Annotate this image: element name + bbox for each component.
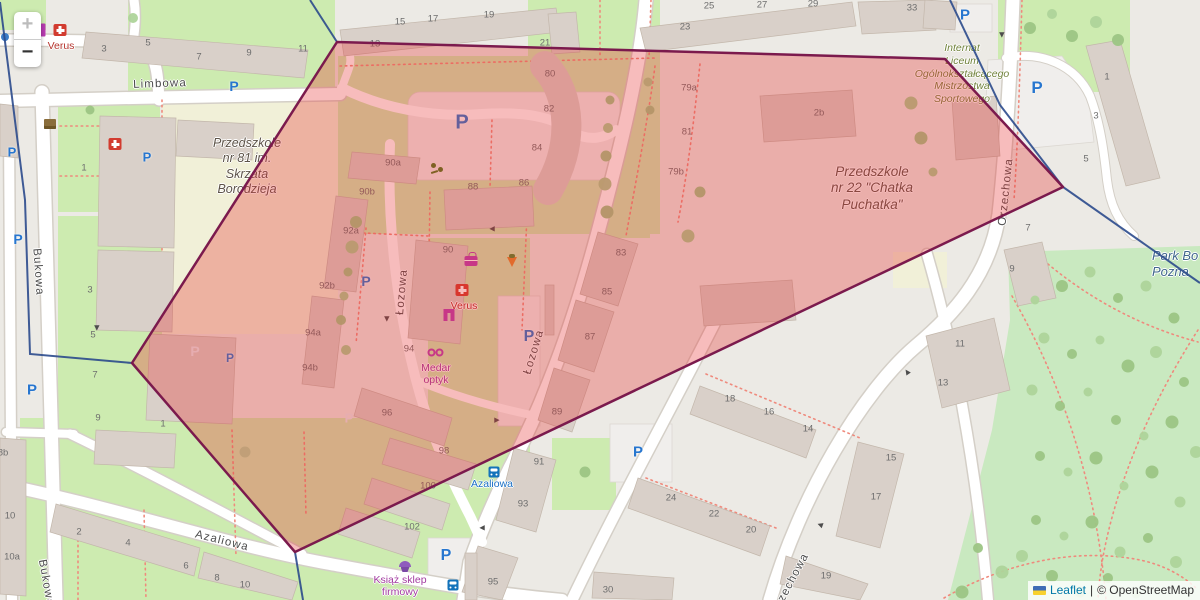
- tree-icon: [1115, 547, 1126, 558]
- housenumber: 94a: [305, 328, 321, 339]
- housenumber: 14: [803, 424, 814, 435]
- parking-icon: P: [633, 444, 643, 461]
- housenumber: 22: [709, 509, 720, 520]
- housenumber: 10a: [4, 552, 20, 563]
- housenumber: 3: [87, 285, 92, 296]
- tree-icon: [973, 543, 983, 553]
- housenumber: 5: [145, 38, 150, 49]
- housenumber: 17: [871, 492, 882, 503]
- map-labels-layer: 357911131517192123252729331357918b1010a2…: [0, 0, 1200, 600]
- tree-icon: [1060, 532, 1069, 541]
- housenumber: 102: [404, 522, 420, 533]
- parking-icon: P: [8, 145, 17, 160]
- parking-icon: P: [960, 7, 970, 24]
- greengrocer-icon: [507, 257, 517, 267]
- tree-icon: [905, 97, 918, 110]
- tree-icon: [599, 178, 612, 191]
- street-name-label: Azaliowa: [194, 529, 250, 554]
- tree-icon: [1120, 482, 1129, 491]
- leaflet-link[interactable]: Leaflet: [1050, 581, 1086, 600]
- oneway-arrow-icon: ▶: [494, 416, 499, 424]
- tree-icon: [646, 106, 655, 115]
- optician-icon: [428, 349, 443, 356]
- tree-icon: [1175, 497, 1186, 508]
- street-name-label: Limbowa: [133, 77, 187, 91]
- tree-icon: [1112, 34, 1124, 46]
- street-name-label: Bukowa: [30, 248, 45, 296]
- tree-icon: [1039, 333, 1050, 344]
- tree-icon: [1027, 385, 1038, 396]
- housenumber: 21: [540, 38, 551, 49]
- tree-icon: [240, 447, 251, 458]
- parking-icon: P: [361, 273, 370, 289]
- bus-stop-icon: [448, 580, 459, 591]
- tree-icon: [1143, 533, 1153, 543]
- tree-icon: [956, 586, 969, 599]
- parking-icon: P: [143, 150, 152, 165]
- zoom-out-button[interactable]: −: [14, 40, 41, 67]
- tree-icon: [1047, 9, 1057, 19]
- clothes-shop-icon: [444, 309, 455, 325]
- housenumber: 92b: [319, 281, 335, 292]
- ukraine-flag-icon: [1033, 586, 1046, 595]
- tree-icon: [1170, 556, 1182, 568]
- housenumber: 94: [404, 344, 415, 355]
- tree-icon: [1141, 281, 1152, 292]
- housenumber: 5: [1083, 154, 1088, 165]
- oneway-arrow-icon: ▶: [93, 325, 101, 330]
- housenumber: 88: [468, 182, 479, 193]
- bus-stop-icon: [489, 467, 500, 478]
- tree-icon: [606, 96, 615, 105]
- tree-icon: [603, 123, 613, 133]
- playground-icon: [430, 162, 444, 174]
- housenumber: 90b: [359, 187, 375, 198]
- housenumber: 80: [545, 69, 556, 80]
- housenumber: 4: [125, 538, 130, 549]
- housenumber: 13: [370, 39, 381, 50]
- parking-icon: P: [190, 343, 199, 359]
- oneway-arrow-icon: ▶: [383, 316, 391, 321]
- housenumber: 91: [534, 457, 545, 468]
- poi-label-verus-pharmacy-2: Verus: [451, 300, 478, 312]
- housenumber: 100: [420, 481, 436, 492]
- housenumber: 1: [160, 419, 165, 430]
- pharmacy-icon: [54, 24, 67, 36]
- housenumber: 95: [488, 577, 499, 588]
- poi-label-medar-optyk: Medaroptyk: [421, 362, 451, 387]
- tree-icon: [1111, 415, 1121, 425]
- tree-icon: [1086, 516, 1099, 529]
- tree-icon: [601, 206, 614, 219]
- tree-icon: [1085, 267, 1096, 278]
- housenumber: 9: [246, 48, 251, 59]
- oneway-arrow-icon: ▶: [489, 225, 494, 233]
- tree-icon: [915, 132, 928, 145]
- map-canvas[interactable]: 357911131517192123252729331357918b1010a2…: [0, 0, 1200, 600]
- housenumber: 98: [439, 446, 450, 457]
- tree-icon: [128, 13, 138, 23]
- tree-icon: [1016, 550, 1028, 562]
- tree-icon: [682, 230, 695, 243]
- zoom-control: + −: [14, 12, 41, 67]
- housenumber: 8b: [0, 448, 8, 459]
- tree-icon: [1031, 515, 1041, 525]
- parking-icon: P: [13, 231, 22, 247]
- housenumber: 9: [1009, 264, 1014, 275]
- osm-link[interactable]: © OpenStreetMap: [1097, 581, 1194, 600]
- oneway-arrow-icon: ▶: [479, 524, 484, 532]
- tree-icon: [601, 151, 612, 162]
- tree-icon: [644, 78, 653, 87]
- housenumber: 79a: [681, 83, 697, 94]
- housenumber: 18: [725, 394, 736, 405]
- poi-dot-icon: [1, 33, 9, 41]
- housenumber: 84: [532, 143, 543, 154]
- housenumber: 29: [808, 0, 819, 10]
- attribution-bar: Leaflet | © OpenStreetMap: [1028, 581, 1200, 600]
- tree-icon: [1169, 313, 1180, 324]
- tree-icon: [996, 566, 1009, 579]
- tree-icon: [344, 268, 353, 277]
- housenumber: 33: [907, 3, 918, 14]
- housenumber: 2b: [814, 108, 825, 119]
- area-label-przedszkole-81: Przedszkolenr 81 im.SkrzataBorodzieja: [213, 136, 281, 197]
- oneway-arrow-icon: ▶: [902, 367, 912, 376]
- tree-icon: [1150, 346, 1162, 358]
- housenumber: 27: [757, 0, 768, 11]
- housenumber: 79b: [668, 167, 684, 178]
- parcel-locker-icon: [44, 119, 56, 129]
- tree-icon: [695, 187, 706, 198]
- tree-icon: [1084, 388, 1093, 397]
- housenumber: 7: [1025, 223, 1030, 234]
- housenumber: 85: [602, 287, 613, 298]
- tree-icon: [346, 241, 359, 254]
- tree-icon: [336, 315, 346, 325]
- pharmacy-icon: [109, 138, 122, 150]
- housenumber: 19: [484, 10, 495, 21]
- parking-icon: P: [229, 78, 238, 94]
- housenumber: 6: [183, 561, 188, 572]
- housenumber: 90a: [385, 158, 401, 169]
- housenumber: 25: [704, 1, 715, 12]
- housenumber: 10: [5, 511, 16, 522]
- housenumber: 89: [552, 407, 563, 418]
- attribution-separator: |: [1090, 581, 1093, 600]
- tree-icon: [1190, 446, 1200, 458]
- housenumber: 5: [90, 330, 95, 341]
- housenumber: 10: [240, 580, 251, 591]
- housenumber: 13: [938, 378, 949, 389]
- housenumber: 15: [886, 453, 897, 464]
- parking-icon: P: [345, 411, 354, 426]
- zoom-in-button[interactable]: +: [14, 12, 41, 40]
- poi-label-verus-pharmacy-1: Verus: [48, 40, 75, 52]
- oneway-arrow-icon: ▶: [816, 520, 824, 529]
- tree-icon: [1090, 16, 1102, 28]
- tree-icon: [1166, 416, 1179, 429]
- housenumber: 7: [196, 52, 201, 63]
- housenumber: 87: [585, 332, 596, 343]
- area-label-park: Park BoPozna: [1152, 248, 1198, 280]
- tree-icon: [1024, 22, 1036, 34]
- housenumber: 17: [428, 14, 439, 25]
- tree-icon: [350, 216, 362, 228]
- housenumber: 15: [395, 17, 406, 28]
- parking-icon: P: [27, 382, 37, 399]
- housenumber: 94b: [302, 363, 318, 374]
- parking-icon: P: [441, 547, 452, 565]
- pharmacy-icon: [456, 284, 469, 296]
- street-name-label: Bukowa: [36, 559, 56, 600]
- housenumber: 9: [95, 413, 100, 424]
- housenumber: 19: [821, 571, 832, 582]
- gift-shop-icon: [465, 256, 478, 266]
- housenumber: 93: [518, 499, 529, 510]
- housenumber: 11: [955, 339, 965, 350]
- shop-bar-icon: [41, 24, 46, 37]
- housenumber: 24: [666, 493, 677, 504]
- street-name-label: Łozowa: [394, 268, 410, 315]
- housenumber: 86: [519, 178, 530, 189]
- parking-icon: P: [1031, 78, 1042, 98]
- housenumber: 7: [92, 370, 97, 381]
- housenumber: 96: [382, 408, 393, 419]
- area-label-internat-liceum: InternatLiceumOgólnokształcącegoMistrzos…: [915, 42, 1010, 106]
- housenumber: 20: [746, 525, 757, 536]
- housenumber: 1: [1104, 72, 1109, 83]
- tree-icon: [1064, 468, 1073, 477]
- poi-label-ksiaz-sklep: Książ sklepfirmowy: [373, 574, 426, 599]
- parking-icon: P: [455, 112, 468, 135]
- tree-icon: [1096, 336, 1105, 345]
- housenumber: 2: [76, 527, 81, 538]
- housenumber: 82: [544, 104, 555, 115]
- housenumber: 3: [101, 44, 106, 55]
- street-name-label: Orzechowa: [996, 158, 1015, 227]
- parking-icon: P: [524, 328, 535, 346]
- tree-icon: [341, 345, 351, 355]
- tree-icon: [1146, 466, 1159, 479]
- poi-label-azaliowa-bus-stop: Azaliowa: [471, 478, 513, 490]
- tree-icon: [1122, 360, 1135, 373]
- tree-icon: [1031, 296, 1040, 305]
- housenumber: 16: [764, 407, 775, 418]
- tree-icon: [1067, 349, 1077, 359]
- tree-icon: [1179, 377, 1189, 387]
- housenumber: 81: [682, 127, 693, 138]
- housenumber: 11: [298, 44, 308, 55]
- tree-icon: [1113, 293, 1123, 303]
- housenumber: 83: [616, 248, 627, 259]
- housenumber: 90: [443, 245, 454, 256]
- housenumber: 23: [680, 22, 691, 33]
- tree-icon: [1056, 280, 1068, 292]
- housenumber: 8: [214, 573, 219, 584]
- tree-icon: [1140, 432, 1149, 441]
- tree-icon: [1055, 401, 1065, 411]
- housenumber: 1: [81, 163, 86, 174]
- confectionery-icon: [399, 561, 411, 567]
- tree-icon: [929, 168, 938, 177]
- tree-icon: [580, 467, 591, 478]
- housenumber: 30: [603, 585, 614, 596]
- tree-icon: [1090, 452, 1103, 465]
- tree-icon: [1035, 451, 1045, 461]
- housenumber: 3: [1093, 111, 1098, 122]
- street-name-label: Orzechowa: [769, 551, 812, 600]
- parking-icon: P: [226, 351, 234, 365]
- tree-icon: [86, 106, 95, 115]
- area-label-przedszkole-22: Przedszkolenr 22 "ChatkaPuchatka": [831, 164, 913, 213]
- tree-icon: [1066, 30, 1078, 42]
- tree-icon: [340, 292, 349, 301]
- oneway-arrow-icon: ▶: [998, 32, 1006, 37]
